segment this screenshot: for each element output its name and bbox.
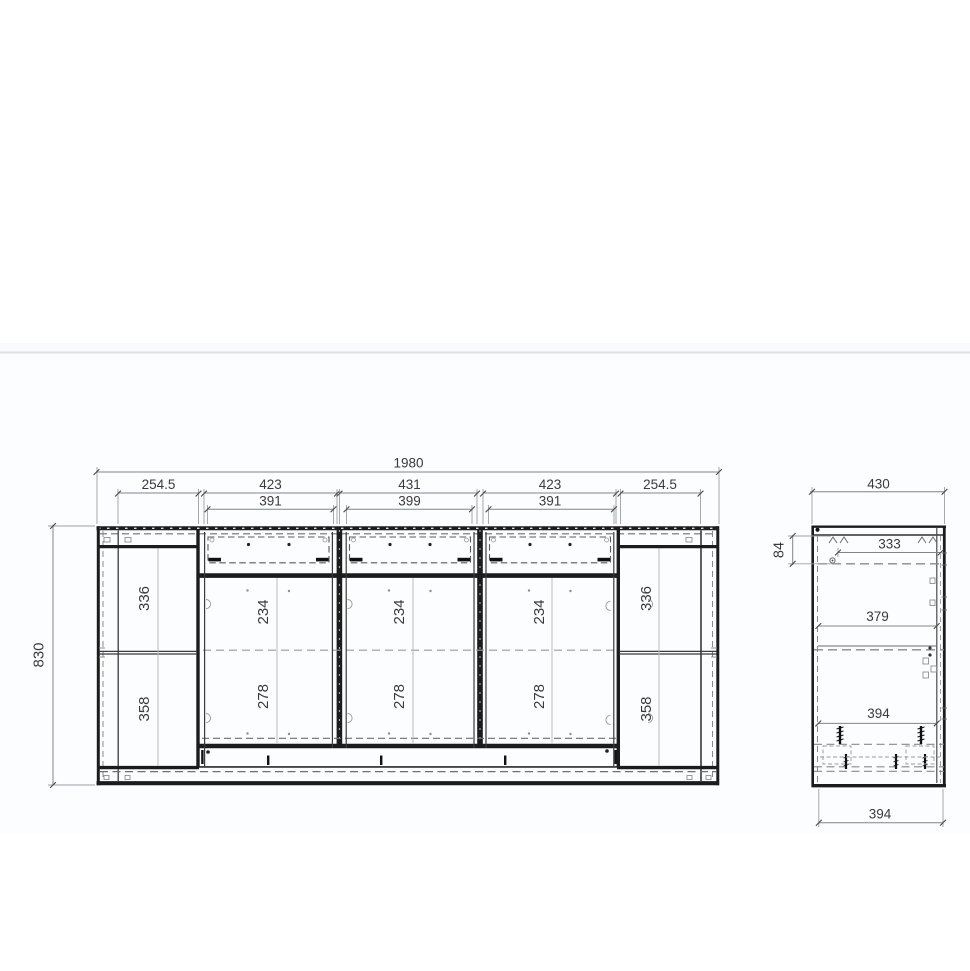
- svg-text:234: 234: [531, 599, 548, 624]
- svg-text:830: 830: [31, 642, 48, 667]
- svg-text:391: 391: [539, 494, 562, 509]
- svg-text:333: 333: [878, 536, 901, 551]
- svg-text:423: 423: [259, 477, 282, 492]
- svg-text:84: 84: [772, 542, 788, 558]
- svg-text:278: 278: [255, 684, 272, 709]
- svg-text:234: 234: [255, 599, 272, 624]
- svg-text:431: 431: [398, 477, 421, 492]
- svg-text:234: 234: [391, 599, 408, 624]
- svg-text:358: 358: [136, 696, 153, 721]
- svg-text:336: 336: [136, 586, 153, 611]
- svg-text:394: 394: [867, 706, 890, 721]
- svg-text:391: 391: [259, 494, 282, 509]
- svg-text:430: 430: [867, 476, 890, 491]
- svg-text:254.5: 254.5: [643, 477, 677, 492]
- svg-text:254.5: 254.5: [142, 477, 176, 492]
- svg-text:423: 423: [539, 477, 562, 492]
- svg-text:394: 394: [869, 807, 892, 822]
- svg-text:399: 399: [398, 494, 421, 509]
- svg-text:278: 278: [391, 684, 408, 709]
- svg-text:379: 379: [866, 609, 889, 624]
- svg-text:278: 278: [531, 684, 548, 709]
- svg-text:336: 336: [638, 586, 655, 611]
- svg-text:1980: 1980: [393, 455, 423, 470]
